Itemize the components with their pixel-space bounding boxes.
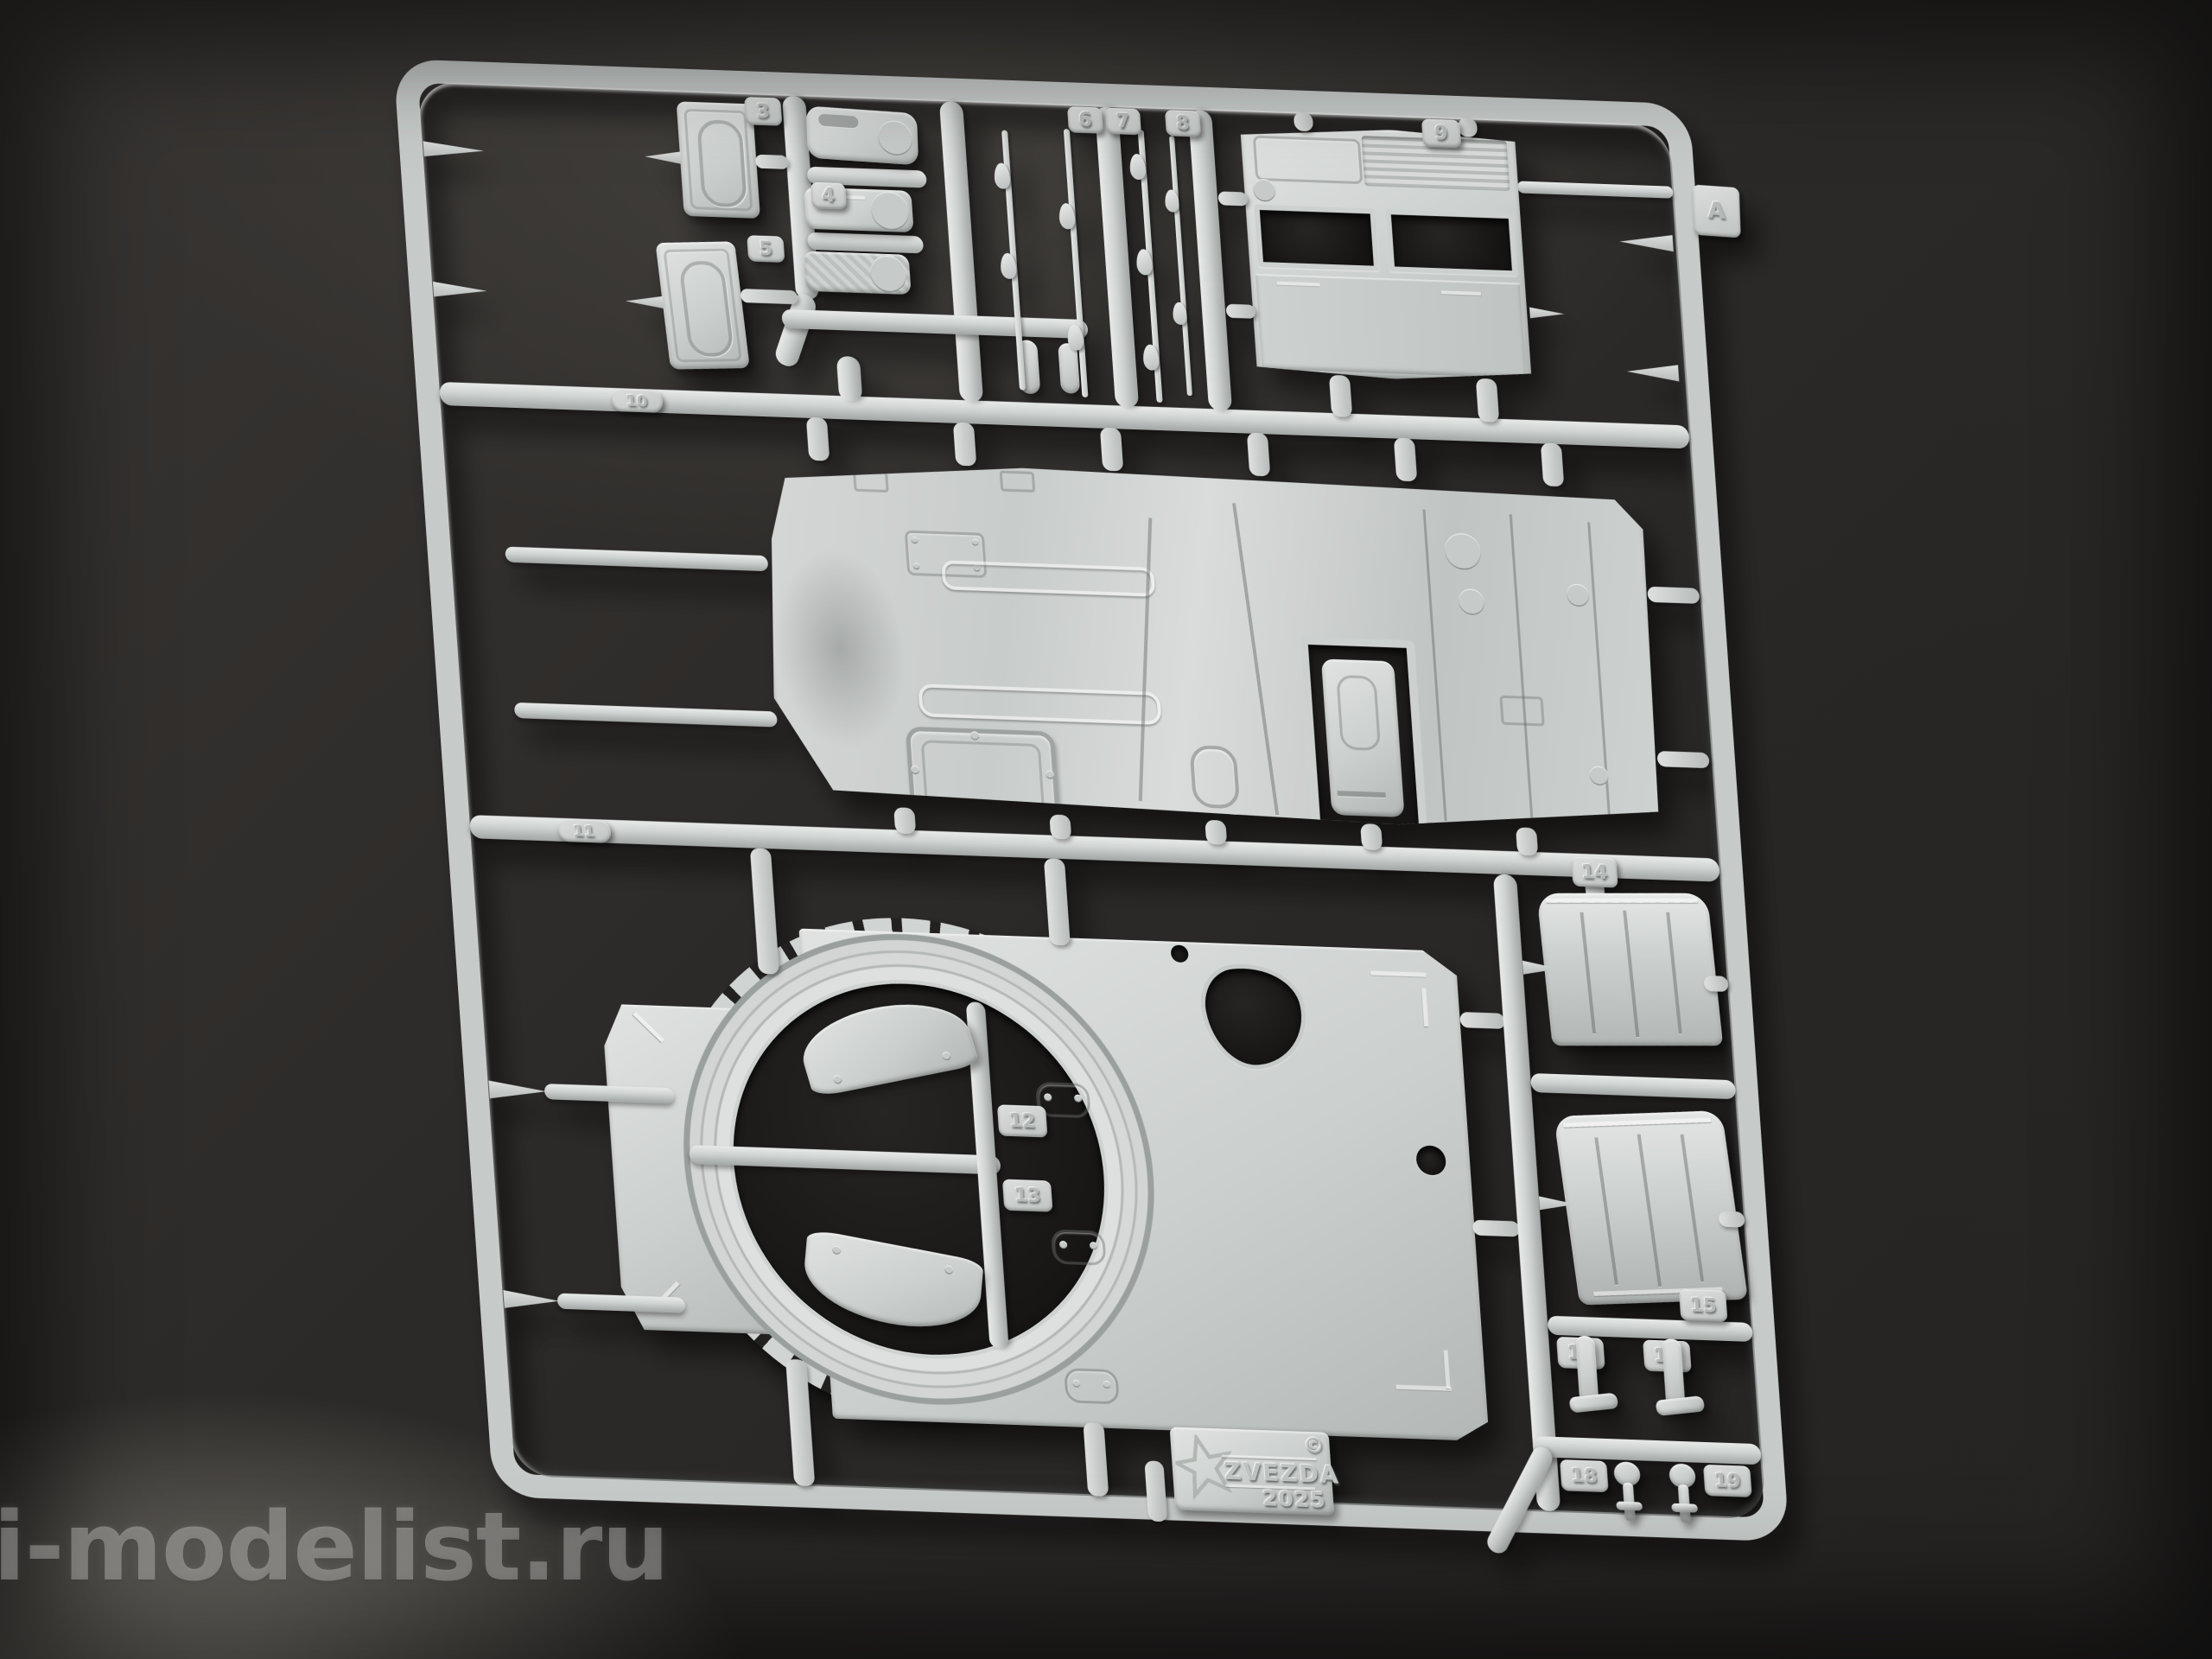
gate-stub bbox=[1719, 1211, 1745, 1228]
gate-stub bbox=[1329, 375, 1352, 417]
part-number-tag: 3 bbox=[744, 97, 782, 126]
sprue-letter-tab: A bbox=[1693, 185, 1741, 238]
part-number-tag: 18 bbox=[1560, 1459, 1609, 1492]
gate-stub bbox=[953, 423, 976, 467]
deck-opening-left bbox=[1254, 205, 1379, 271]
hull-strip-2 bbox=[918, 683, 1162, 725]
gate-stub bbox=[806, 417, 829, 461]
gate-stub bbox=[1225, 304, 1255, 319]
part-number-tag: 13 bbox=[1002, 1179, 1053, 1212]
part-number-tag: 10 bbox=[610, 389, 664, 413]
sprue-letter: A bbox=[1707, 198, 1726, 225]
fender-part-1 bbox=[806, 105, 918, 165]
hull-strip-1 bbox=[941, 560, 1155, 597]
hull-oval-detail bbox=[1189, 745, 1240, 809]
gate-stub bbox=[741, 289, 798, 304]
hull-opening-door bbox=[1321, 659, 1405, 817]
side-skirt-2 bbox=[1554, 1110, 1748, 1305]
gate-stub bbox=[755, 155, 789, 169]
part-number-tag: 7 bbox=[1105, 108, 1141, 135]
part-number-tag: 19 bbox=[1703, 1465, 1752, 1497]
gate-stub bbox=[1647, 587, 1700, 604]
gate-stub bbox=[893, 807, 916, 834]
part-number-tag: 15 bbox=[1679, 1289, 1728, 1322]
part-number-tag: 8 bbox=[1165, 110, 1201, 137]
cylinder-part-2 bbox=[1058, 343, 1080, 394]
engine-deck-panel bbox=[1240, 124, 1532, 384]
part-number-tag: 11 bbox=[556, 819, 612, 843]
gate-stub bbox=[1459, 1012, 1505, 1029]
photo-scene: A 3 4 5 6 7 8 9 10 11 bbox=[0, 0, 2212, 1659]
hull-cap-2 bbox=[1458, 588, 1485, 615]
part-number-tag: 4 bbox=[810, 182, 847, 209]
plate-oval-pad bbox=[1051, 1230, 1107, 1266]
gate-stub bbox=[1100, 428, 1123, 472]
part-number-tag: 14 bbox=[1571, 857, 1618, 888]
hull-cap-1 bbox=[1443, 532, 1482, 570]
valve-part-1-disc bbox=[1616, 1501, 1643, 1510]
gate-stub bbox=[1472, 1220, 1520, 1237]
hatch-panel-2 bbox=[655, 241, 749, 369]
watermark-text: i-modelist.ru bbox=[0, 1491, 669, 1602]
plate-oval-pad bbox=[1064, 1368, 1120, 1404]
gate-stub bbox=[1294, 111, 1314, 131]
sprue-frame-a: A 3 4 5 6 7 8 9 10 11 bbox=[393, 59, 1789, 1541]
deck-opening-right bbox=[1385, 209, 1517, 276]
gate-stub bbox=[1360, 823, 1382, 850]
gate-stub bbox=[1476, 378, 1499, 423]
gate-stub bbox=[1703, 976, 1728, 992]
hull-opening bbox=[1300, 637, 1427, 838]
gate-stub bbox=[1049, 815, 1071, 840]
gate-stub bbox=[1394, 437, 1417, 481]
hull-deck-panel bbox=[757, 452, 1665, 845]
deck-lower-panel bbox=[1255, 274, 1527, 378]
fender-part-3-textured bbox=[803, 251, 911, 295]
part-number-tag: 12 bbox=[997, 1104, 1048, 1137]
side-skirt-1 bbox=[1536, 893, 1723, 1046]
maker-year: 2025 bbox=[1262, 1485, 1327, 1513]
part-number-tag: 6 bbox=[1067, 106, 1103, 133]
copyright-symbol: © bbox=[1303, 1433, 1325, 1459]
maker-plate: ZVEZDA 2025 © bbox=[1170, 1427, 1335, 1516]
gate-stub bbox=[1458, 118, 1478, 137]
rail-vertical-dogleg-lower bbox=[836, 356, 863, 402]
part-number-tag: 5 bbox=[747, 235, 785, 263]
gate-stub bbox=[1217, 191, 1248, 206]
hull-front-recess bbox=[768, 547, 912, 751]
valve-part-2-disc bbox=[1671, 1503, 1698, 1513]
gate-stub bbox=[1516, 827, 1538, 855]
gate-stub bbox=[1656, 751, 1709, 768]
gate-stub bbox=[1205, 820, 1227, 845]
gate-stub bbox=[1247, 432, 1270, 476]
gate-stub bbox=[1541, 442, 1564, 486]
part-number-tag: 9 bbox=[1421, 119, 1461, 149]
